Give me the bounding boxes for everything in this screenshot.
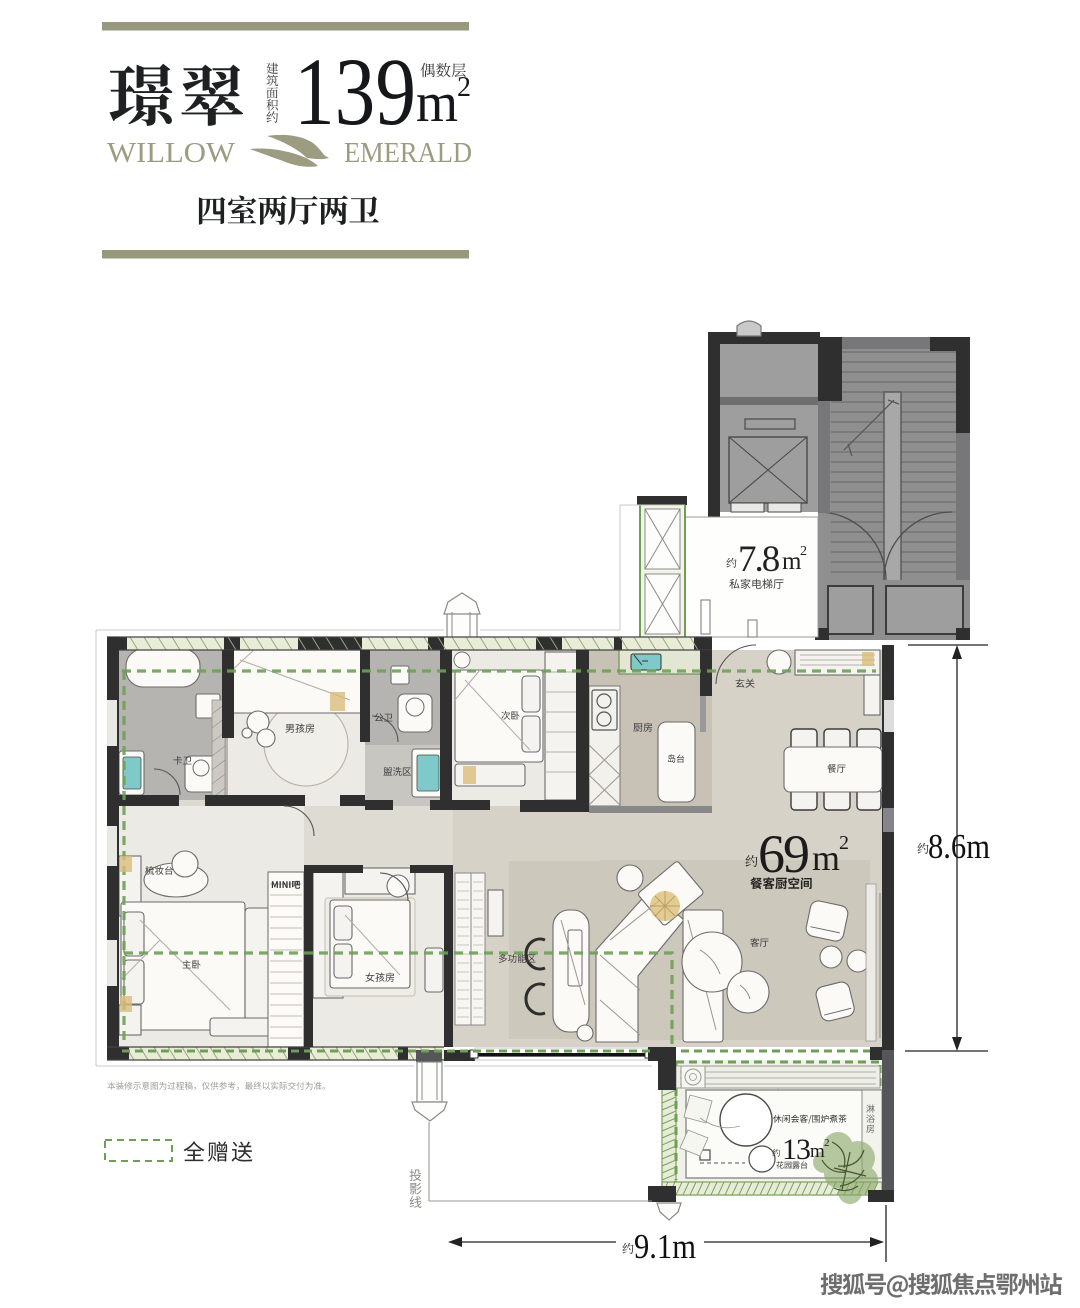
svg-text:WILLOW: WILLOW [107, 138, 236, 169]
svg-text:2: 2 [800, 544, 807, 559]
svg-text:139: 139 [294, 38, 416, 145]
svg-text:2: 2 [457, 72, 471, 103]
svg-text:2: 2 [839, 832, 849, 854]
svg-text:m: m [416, 72, 458, 134]
svg-text:m: m [782, 548, 802, 575]
svg-text:m: m [812, 838, 840, 878]
svg-text:m: m [810, 1141, 825, 1162]
svg-text:EMERALD: EMERALD [344, 138, 472, 169]
svg-text:13: 13 [782, 1133, 810, 1166]
svg-text:2: 2 [824, 1137, 830, 1149]
svg-text:69: 69 [758, 824, 808, 884]
svg-text:7.8: 7.8 [738, 539, 780, 580]
svg-text:9.1m: 9.1m [634, 1227, 696, 1266]
svg-text:8.6m: 8.6m [928, 827, 990, 866]
